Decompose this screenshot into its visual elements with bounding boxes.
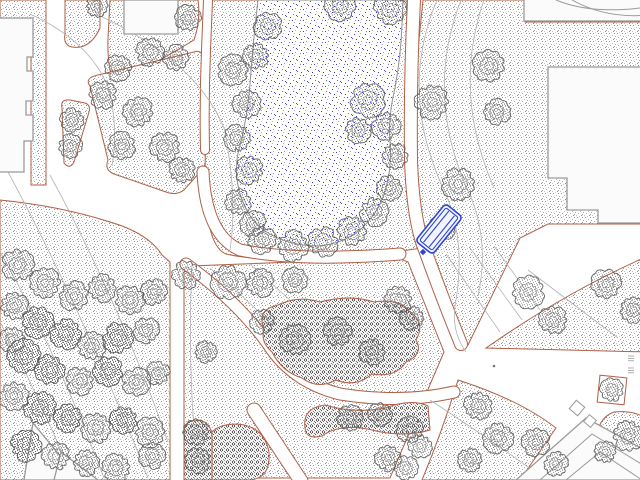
tree-symbol — [81, 413, 111, 443]
footpath — [205, 0, 208, 150]
cropped-annotation-mark — [628, 368, 634, 373]
tree-symbol — [185, 447, 211, 473]
site-plan-canvas[interactable] — [0, 0, 640, 480]
tree-symbol — [512, 275, 544, 309]
tree-symbol — [169, 157, 195, 183]
tree-symbol — [87, 0, 109, 17]
building-footprint — [524, 0, 640, 21]
tree-symbol — [408, 435, 433, 458]
site-plan-viewport[interactable] — [0, 0, 640, 480]
tree-symbol — [0, 328, 25, 353]
survey-point — [493, 365, 496, 368]
tree-symbol — [539, 306, 567, 333]
tree-symbol — [171, 261, 200, 290]
tree-symbol — [279, 324, 311, 354]
tree-symbol — [89, 81, 117, 110]
building-footprint — [124, 0, 178, 34]
tree-symbol — [59, 133, 83, 158]
tree-symbol — [103, 323, 134, 354]
tree-symbol — [253, 12, 281, 40]
cropped-annotation-mark — [628, 356, 634, 361]
shrub-mass — [206, 424, 270, 480]
tree-symbol — [594, 441, 616, 463]
tree-symbol — [599, 378, 623, 401]
tree-symbol — [394, 456, 419, 480]
building-detail — [569, 400, 584, 415]
tree-symbol — [122, 367, 151, 396]
building-footprint — [0, 18, 33, 172]
